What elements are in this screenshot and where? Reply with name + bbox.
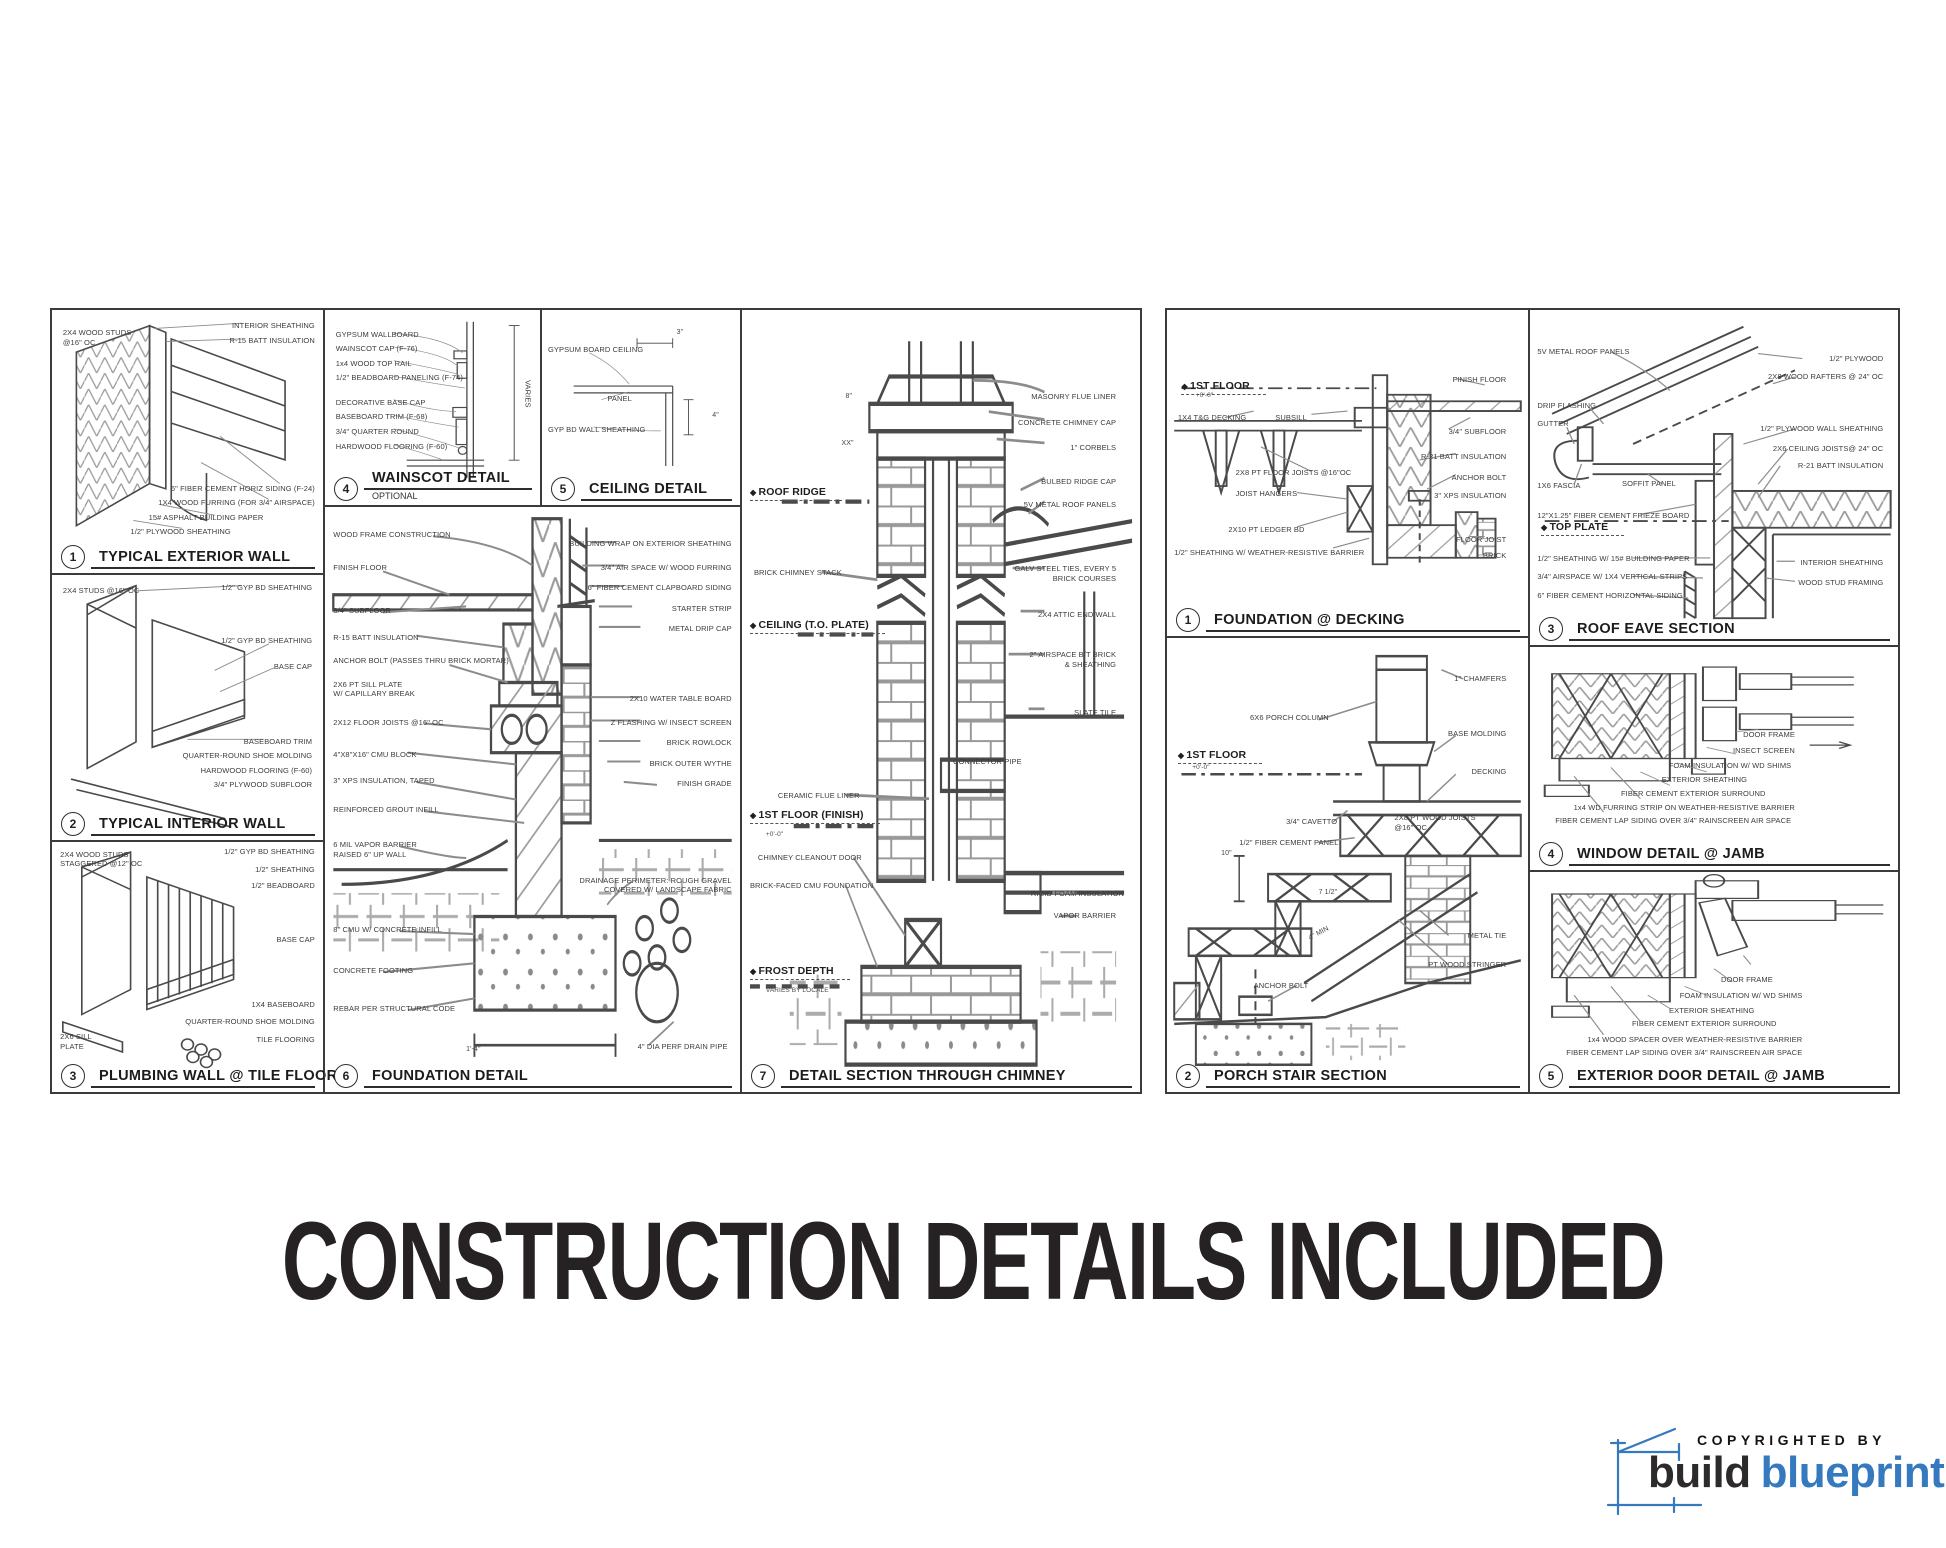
annotation-label: 2X8 WOOD RAFTERS @ 24" OC <box>1768 372 1883 382</box>
detail-title: TYPICAL INTERIOR WALL <box>91 816 315 832</box>
annotation-label: FLOOR JOIST <box>1456 535 1506 545</box>
annotation-label: SOFFIT PANEL <box>1622 479 1676 489</box>
detail-titlebar: 2 TYPICAL INTERIOR WALL <box>61 812 315 836</box>
panel-chimney-section: ROOF RIDGECEILING (T.O. PLATE)1ST FLOOR … <box>741 309 1141 1093</box>
detail-title: TYPICAL EXTERIOR WALL <box>91 549 315 565</box>
panel-window-detail-jamb: DOOR FRAMEINSECT SCREENFOAM INSULATION W… <box>1529 646 1899 871</box>
annotation-label: METAL DRIP CAP <box>669 624 732 634</box>
detail-number: 7 <box>751 1064 775 1088</box>
annotation-label: 1X6 FASCIA <box>1537 481 1580 491</box>
annotation-label: +0'-0" <box>1192 764 1209 772</box>
annotation-label: DECKING <box>1471 767 1506 777</box>
annotation-label: 6X6 PORCH COLUMN <box>1250 713 1329 723</box>
left-sheet: 2X4 WOOD STUDS @16" OCINTERIOR SHEATHING… <box>50 308 1142 1094</box>
annotation-label: RIGID FOAM INSULATION <box>1031 889 1124 899</box>
annotation-label: 1/2" GYP BD SHEATHING <box>221 636 312 646</box>
detail-number: 6 <box>334 1064 358 1088</box>
annotation-label: SUBSILL <box>1275 413 1307 423</box>
annotation-label: 3" <box>677 328 684 337</box>
detail-number: 5 <box>551 477 575 501</box>
annotation-label: WOOD FRAME CONSTRUCTION <box>333 530 450 540</box>
annotation-label: MASONRY FLUE LINER <box>1031 392 1116 402</box>
annotation-label: DOOR FRAME <box>1721 975 1773 985</box>
annotation-label: 1X4 BASEBOARD <box>251 1000 314 1010</box>
page-title: CONSTRUCTION DETAILS INCLUDED <box>272 1198 1673 1325</box>
detail-number: 2 <box>61 812 85 836</box>
annotation-label: INSECT SCREEN <box>1733 746 1795 756</box>
annotations: DOOR FRAMEINSECT SCREENFOAM INSULATION W… <box>1530 647 1898 870</box>
elevation-marker: 1ST FLOOR (FINISH) <box>750 809 880 824</box>
annotation-label: ANCHOR BOLT <box>1452 473 1507 483</box>
annotation-label: BASEBOARD TRIM <box>244 737 312 747</box>
annotation-label: SLATE TILE <box>1074 708 1116 718</box>
detail-title: FOUNDATION @ DECKING <box>1206 612 1520 628</box>
annotation-label: EXTERIOR SHEATHING <box>1662 775 1747 785</box>
brand-name: buildblueprint <box>1648 1448 1944 1498</box>
panel-porch-stair-section: 1" CHAMFERS6X6 PORCH COLUMNBASE MOLDING1… <box>1166 637 1529 1093</box>
annotation-label: 1x4 WOOD SPACER OVER WEATHER-RESISTIVE B… <box>1588 1035 1803 1045</box>
annotation-label: 1/2" PLYWOOD WALL SHEATHING <box>1760 424 1883 434</box>
annotation-label: BRICK <box>1483 551 1506 561</box>
annotation-label: 1X4 WOOD FURRING (FOR 3/4" AIRSPACE) <box>158 498 315 508</box>
annotations: 1" CHAMFERS6X6 PORCH COLUMNBASE MOLDING1… <box>1167 638 1528 1092</box>
panel-ceiling-detail: GYPSUM BOARD CEILINGPANELGYP BD WALL SHE… <box>541 309 741 506</box>
detail-titlebar: 2 PORCH STAIR SECTION <box>1176 1064 1520 1088</box>
annotation-label: 1'-4" <box>466 1045 480 1054</box>
annotation-label: REBAR PER STRUCTURAL CODE <box>333 1004 455 1014</box>
title-rule <box>1206 1086 1520 1088</box>
annotation-label: BULBED RIDGE CAP <box>1041 477 1116 487</box>
panel-typical-interior-wall: 2X4 STUDS @16" OC1/2" GYP BD SHEATHING1/… <box>51 574 324 841</box>
annotation-label: TILE FLOORING <box>256 1035 314 1045</box>
annotation-label: 3/4" AIR SPACE W/ WOOD FURRING <box>601 563 732 573</box>
annotation-label: INTERIOR SHEATHING <box>1800 558 1883 568</box>
detail-number: 4 <box>1539 842 1563 866</box>
annotation-label: 2X4 ATTIC END WALL <box>1038 610 1116 620</box>
panel-foundation-at-decking: 1ST FLOOR+0'-0"1X4 T&G DECKINGSUBSILLFIN… <box>1166 309 1529 637</box>
annotation-label: HARDWOOD FLOORING (F-60) <box>336 442 448 452</box>
annotation-label: 2X10 PT LEDGER BD <box>1228 525 1304 535</box>
detail-title: ROOF EAVE SECTION <box>1569 621 1890 637</box>
annotation-label: CONNECTOR PIPE <box>953 757 1022 767</box>
annotation-label: BASE CAP <box>274 662 312 672</box>
elevation-marker: CEILING (T.O. PLATE) <box>750 619 885 634</box>
annotations: 2X4 STUDS @16" OC1/2" GYP BD SHEATHING1/… <box>52 575 323 840</box>
brand-build: build <box>1648 1448 1751 1497</box>
detail-title: PLUMBING WALL @ TILE FLOOR <box>91 1068 315 1084</box>
annotation-label: 2" AIRSPACE B/T BRICK & SHEATHING <box>1030 650 1117 670</box>
detail-title: WAINSCOT DETAIL <box>364 470 532 486</box>
annotation-label: BASE MOLDING <box>1448 729 1506 739</box>
panel-plumbing-wall-tile-floor: 2X4 WOOD STUDS STAGGERED @12" OC1/2" GYP… <box>51 841 324 1093</box>
annotation-label: 2X6 SILL PLATE <box>60 1032 92 1052</box>
detail-titlebar: 4 WINDOW DETAIL @ JAMB <box>1539 842 1890 866</box>
annotation-label: 2X4 WOOD STUDS STAGGERED @12" OC <box>60 850 142 870</box>
panel-foundation-detail: WOOD FRAME CONSTRUCTIONFINISH FLOOR3/4" … <box>324 506 741 1093</box>
copyright-text: COPYRIGHTED BY <box>1697 1432 1886 1448</box>
title-rule <box>1569 1086 1890 1088</box>
annotation-label: R-21 BATT INSULATION <box>1798 461 1883 471</box>
annotation-label: 2X10 WATER TABLE BOARD <box>630 694 732 704</box>
title-rule <box>1206 630 1520 632</box>
annotation-label: QUARTER-ROUND SHOE MOLDING <box>183 751 313 761</box>
annotation-label: STARTER STRIP <box>672 604 732 614</box>
annotation-label: +0'-0" <box>766 831 783 839</box>
annotation-label: QUARTER-ROUND SHOE MOLDING <box>185 1017 315 1027</box>
annotation-label: 3/4" PLYWOOD SUBFLOOR <box>214 780 312 790</box>
title-rule <box>91 834 315 836</box>
detail-titlebar: 3 ROOF EAVE SECTION <box>1539 617 1890 641</box>
annotation-label: 1/2" GYP BD SHEATHING <box>224 847 315 857</box>
annotations: WOOD FRAME CONSTRUCTIONFINISH FLOOR3/4" … <box>325 507 740 1092</box>
annotations: 2X4 WOOD STUDS STAGGERED @12" OC1/2" GYP… <box>52 842 323 1092</box>
annotations: 1ST FLOOR+0'-0"1X4 T&G DECKINGSUBSILLFIN… <box>1167 310 1528 636</box>
right-sheet: 1ST FLOOR+0'-0"1X4 T&G DECKINGSUBSILLFIN… <box>1165 308 1900 1094</box>
annotation-label: +0'-0" <box>1196 392 1213 400</box>
annotation-label: R-15 BATT INSULATION <box>230 336 315 346</box>
detail-titlebar: 7 DETAIL SECTION THROUGH CHIMNEY <box>751 1064 1132 1088</box>
annotation-label: 1/2" SHEATHING <box>255 865 315 875</box>
detail-number: 1 <box>61 545 85 569</box>
annotation-label: 3/4" SUBFLOOR <box>333 606 391 616</box>
annotation-label: 1x4 WD FURRING STRIP ON WEATHER-RESISTIV… <box>1574 803 1795 813</box>
annotation-label: FOAM INSULATION W/ WD SHIMS <box>1680 991 1803 1001</box>
elevation-marker: 1ST FLOOR <box>1178 749 1262 764</box>
annotation-label: CHIMNEY CLEANOUT DOOR <box>758 853 862 863</box>
annotation-label: CERAMIC FLUE LINER <box>778 791 860 801</box>
annotation-label: 3" XPS INSULATION <box>1434 491 1506 501</box>
annotation-label: GYPSUM BOARD CEILING <box>548 345 643 355</box>
detail-titlebar: 1 FOUNDATION @ DECKING <box>1176 608 1520 632</box>
title-rule <box>364 488 532 490</box>
annotation-label: 6" FIBER CEMENT HORIZ SIDING (F-24) <box>171 484 315 494</box>
annotations: ROOF RIDGECEILING (T.O. PLATE)1ST FLOOR … <box>742 310 1140 1092</box>
elevation-marker: 1ST FLOOR <box>1181 380 1265 395</box>
annotation-label: 1/2" BEADBOARD PANELING (F-74) <box>336 373 463 383</box>
annotation-label: 4" DIA PERF DRAIN PIPE <box>638 1042 728 1052</box>
detail-title: FOUNDATION DETAIL <box>364 1068 732 1084</box>
annotation-label: GUTTER <box>1537 419 1568 429</box>
construction-details-sheet: 2X4 WOOD STUDS @16" OCINTERIOR SHEATHING… <box>0 0 1946 1548</box>
annotation-label: 3/4" AIRSPACE W/ 1X4 VERTICAL STRIPS <box>1537 572 1687 582</box>
annotation-label: METAL TIE <box>1468 931 1507 941</box>
annotation-label: BRICK-FACED CMU FOUNDATION <box>750 881 873 891</box>
annotation-label: R-21 BATT INSULATION <box>1421 452 1506 462</box>
title-rule <box>781 1086 1132 1088</box>
detail-titlebar: 4 WAINSCOT DETAILOPTIONAL <box>334 470 532 501</box>
annotation-label: DECORATIVE BASE CAP <box>336 398 426 408</box>
annotation-label: PT WOOD STRINGER <box>1428 960 1506 970</box>
detail-title: PORCH STAIR SECTION <box>1206 1068 1520 1084</box>
annotations: 5V METAL ROOF PANELS1/2" PLYWOOD2X8 WOOD… <box>1530 310 1898 645</box>
title-rule <box>364 1086 732 1088</box>
detail-titlebar: 5 CEILING DETAIL <box>551 477 732 501</box>
detail-title: CEILING DETAIL <box>581 481 732 497</box>
annotation-label: FIBER CEMENT EXTERIOR SURROUND <box>1632 1019 1777 1029</box>
annotation-label: 1/2" BEADBOARD <box>251 881 315 891</box>
detail-titlebar: 1 TYPICAL EXTERIOR WALL <box>61 545 315 569</box>
annotation-label: FIBER CEMENT LAP SIDING OVER 3/4" RAINSC… <box>1555 816 1791 826</box>
annotation-label: 2X8 PT FLOOR JOISTS @16"OC <box>1236 468 1352 478</box>
annotation-label: 3/4" SUBFLOOR <box>1449 427 1507 437</box>
annotation-label: FINISH FLOOR <box>1453 375 1507 385</box>
detail-number: 2 <box>1176 1064 1200 1088</box>
annotation-label: VAPOR BARRIER <box>1054 911 1116 921</box>
annotation-label: R-15 BATT INSULATION <box>333 633 418 643</box>
title-rule <box>1569 864 1890 866</box>
annotation-label: 2X4 WOOD STUDS @16" OC <box>63 328 132 348</box>
annotation-label: 15# ASPHALT BUILDING PAPER <box>149 513 264 523</box>
annotation-label: FOAM INSULATION W/ WD SHIMS <box>1669 761 1792 771</box>
annotation-label: INTERIOR SHEATHING <box>232 321 315 331</box>
annotation-label: 12"X1.25" FIBER CEMENT FRIEZE BOARD <box>1537 511 1689 521</box>
annotation-label: Z FLASHING W/ INSECT SCREEN <box>611 718 732 728</box>
detail-titlebar: 5 EXTERIOR DOOR DETAIL @ JAMB <box>1539 1064 1890 1088</box>
annotation-label: 8" <box>845 392 852 401</box>
title-rule <box>91 567 315 569</box>
title-rule <box>91 1086 315 1088</box>
elevation-marker: ROOF RIDGE <box>750 486 842 501</box>
annotation-label: BRICK OUTER WYTHE <box>650 759 732 769</box>
detail-titlebar: 3 PLUMBING WALL @ TILE FLOOR <box>61 1064 315 1088</box>
annotation-label: FINISH FLOOR <box>333 563 387 573</box>
panel-wainscot-detail: GYPSUM WALLBOARDWAINSCOT CAP (F-76)1x4 W… <box>324 309 541 506</box>
detail-number: 1 <box>1176 608 1200 632</box>
title-rule <box>1569 639 1890 641</box>
annotation-label: ANCHOR BOLT <box>1254 981 1309 991</box>
annotation-label: 1" CORBELS <box>1070 443 1116 453</box>
annotation-label: 6 MIL VAPOR BARRIER RAISED 6" UP WALL <box>333 840 417 860</box>
detail-titlebar: 6 FOUNDATION DETAIL <box>334 1064 732 1088</box>
annotation-label: CONCRETE CHIMNEY CAP <box>1018 418 1116 428</box>
annotation-label: PANEL <box>607 394 632 404</box>
annotation-label: 5V METAL ROOF PANELS <box>1537 347 1629 357</box>
annotation-label: WAINSCOT CAP (F-76) <box>336 344 418 354</box>
annotation-label: 1/2" GYP BD SHEATHING <box>221 583 312 593</box>
detail-number: 3 <box>61 1064 85 1088</box>
annotations: GYPSUM BOARD CEILINGPANELGYP BD WALL SHE… <box>542 310 740 505</box>
annotation-label: BRICK CHIMNEY STACK <box>754 568 842 578</box>
annotation-label: 2X6 CEILING JOISTS@ 24" OC <box>1773 444 1883 454</box>
panel-typical-exterior-wall: 2X4 WOOD STUDS @16" OCINTERIOR SHEATHING… <box>51 309 324 574</box>
annotation-label: 1/2" PLYWOOD SHEATHING <box>130 527 230 537</box>
annotation-label: 4" MIN <box>1307 924 1330 942</box>
detail-number: 5 <box>1539 1064 1563 1088</box>
detail-subtitle: OPTIONAL <box>364 491 532 501</box>
annotation-label: 4"X8"X16" CMU BLOCK <box>333 750 416 760</box>
annotation-label: CONCRETE FOOTING <box>333 966 413 976</box>
annotation-label: 3/4" QUARTER ROUND <box>336 427 419 437</box>
annotation-label: 1X4 T&G DECKING <box>1178 413 1246 423</box>
annotation-label: BASE CAP <box>277 935 315 945</box>
detail-number: 4 <box>334 477 358 501</box>
elevation-marker: TOP PLATE <box>1541 521 1624 536</box>
annotations: 2X4 WOOD STUDS @16" OCINTERIOR SHEATHING… <box>52 310 323 573</box>
annotation-label: 8" CMU W/ CONCRETE INFILL <box>333 925 442 935</box>
detail-number: 3 <box>1539 617 1563 641</box>
annotation-label: 2X6 PT SILL PLATE W/ CAPILLARY BREAK <box>333 680 415 700</box>
annotation-label: HARDWOOD FLOORING (F-60) <box>201 766 313 776</box>
annotation-label: FINISH GRADE <box>677 779 732 789</box>
annotation-label: 2X4 STUDS @16" OC <box>63 586 140 596</box>
annotation-label: 2X8 PT WOOD JOISTS @16" OC <box>1394 813 1475 833</box>
annotation-label: 3/4" CAVETTO <box>1286 817 1337 827</box>
annotation-label: VARIES BY LOCALE <box>766 987 829 995</box>
title-rule <box>581 499 732 501</box>
buildblueprint-logo: COPYRIGHTED BY buildblueprint <box>1595 1390 1940 1540</box>
detail-title: WINDOW DETAIL @ JAMB <box>1569 846 1890 862</box>
annotation-label: 3" XPS INSULATION, TAPED <box>333 776 434 786</box>
annotation-label: 2X12 FLOOR JOISTS @16" OC <box>333 718 443 728</box>
annotation-label: DRIP FLASHING <box>1537 401 1596 411</box>
annotation-label: 6" FIBER CEMENT CLAPBOARD SIDING <box>588 583 732 593</box>
annotation-label: JOIST HANGERS <box>1236 489 1298 499</box>
annotation-label: VARIES <box>523 380 533 408</box>
annotation-label: REINFORCED GROUT INFILL <box>333 805 439 815</box>
annotation-label: WOOD STUD FRAMING <box>1798 578 1883 588</box>
annotation-label: 10" <box>1221 849 1232 858</box>
annotation-label: FIBER CEMENT LAP SIDING OVER 3/4" RAINSC… <box>1566 1048 1802 1058</box>
detail-title: EXTERIOR DOOR DETAIL @ JAMB <box>1569 1068 1890 1084</box>
panel-exterior-door-detail-jamb: DOOR FRAMEFOAM INSULATION W/ WD SHIMSEXT… <box>1529 871 1899 1093</box>
annotations: DOOR FRAMEFOAM INSULATION W/ WD SHIMSEXT… <box>1530 872 1898 1092</box>
annotation-label: BRICK ROWLOCK <box>667 738 732 748</box>
annotation-label: BUILDING WRAP ON EXTERIOR SHEATHING <box>569 539 731 549</box>
annotation-label: 1/2" PLYWOOD <box>1829 354 1883 364</box>
annotation-label: DOOR FRAME <box>1743 730 1795 740</box>
panel-roof-eave-section: 5V METAL ROOF PANELS1/2" PLYWOOD2X8 WOOD… <box>1529 309 1899 646</box>
annotation-label: 4" <box>712 411 719 420</box>
annotation-label: FIBER CEMENT EXTERIOR SURROUND <box>1621 789 1766 799</box>
annotation-label: GALV STEEL TIES, EVERY 5 BRICK COURSES <box>1014 564 1116 584</box>
annotation-label: GYPSUM WALLBOARD <box>336 330 419 340</box>
annotation-label: 1" CHAMFERS <box>1454 674 1506 684</box>
annotation-label: BASEBOARD TRIM (F-68) <box>336 412 428 422</box>
elevation-marker: FROST DEPTH <box>750 965 850 980</box>
annotation-label: ANCHOR BOLT (PASSES THRU BRICK MORTAR) <box>333 656 509 666</box>
annotation-label: XX" <box>842 439 854 448</box>
annotation-label: EXTERIOR SHEATHING <box>1669 1006 1754 1016</box>
annotation-label: 7 1/2" <box>1319 888 1338 897</box>
brand-blueprint: blueprint <box>1761 1448 1945 1497</box>
annotation-label: 6" FIBER CEMENT HORIZONTAL SIDING <box>1537 591 1682 601</box>
annotation-label: 1/2" SHEATHING W/ 15# BUILDING PAPER <box>1537 554 1689 564</box>
annotation-label: 1/2" SHEATHING W/ WEATHER-RESISTIVE BARR… <box>1174 548 1364 558</box>
annotation-label: DRAINAGE PERIMETER: ROUGH GRAVEL COVERED… <box>579 876 731 896</box>
annotation-label: 1/2" FIBER CEMENT PANEL <box>1239 838 1338 848</box>
annotation-label: GYP BD WALL SHEATHING <box>548 425 646 435</box>
annotation-label: 1x4 WOOD TOP RAIL <box>336 359 412 369</box>
detail-title: DETAIL SECTION THROUGH CHIMNEY <box>781 1068 1132 1084</box>
annotation-label: 5V METAL ROOF PANELS <box>1024 500 1116 510</box>
